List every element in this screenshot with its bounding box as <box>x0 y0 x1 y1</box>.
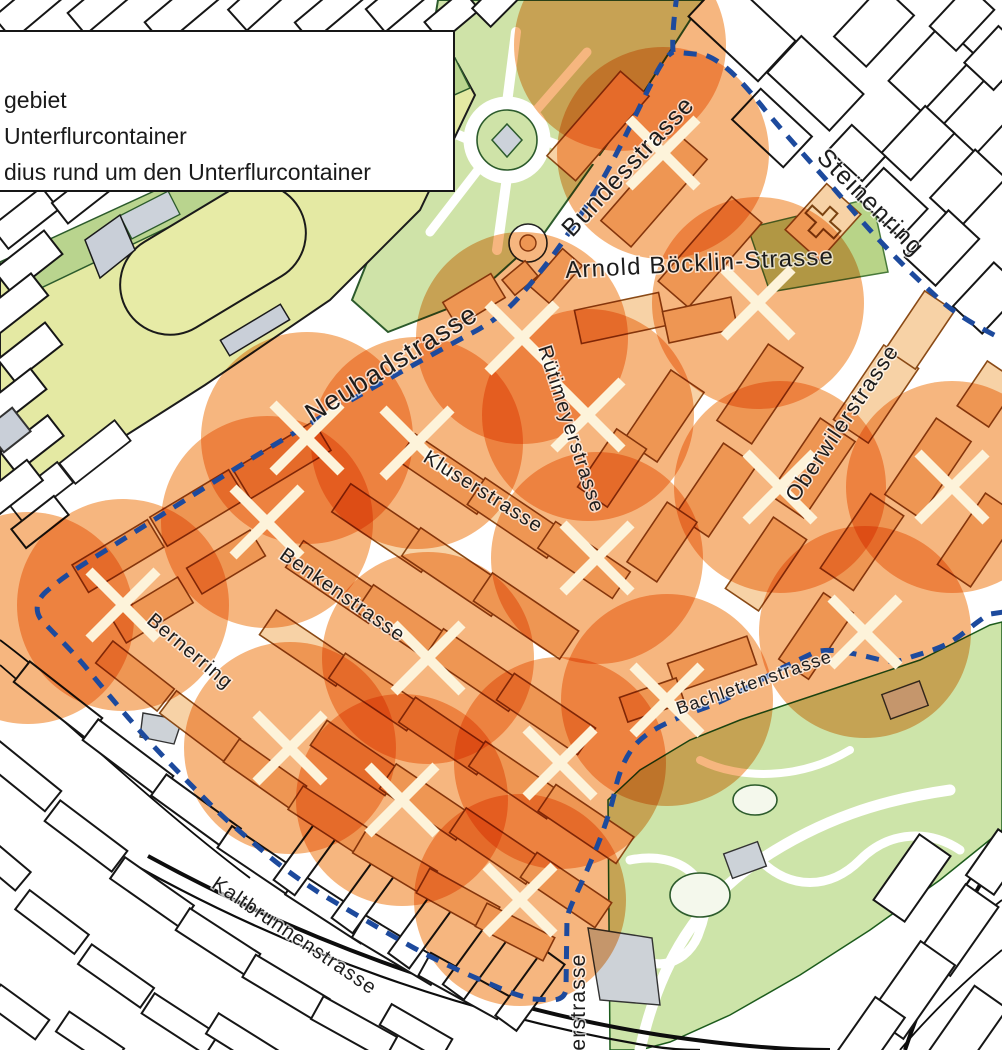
legend-item-radius: dius rund um den Unterflurcontainer <box>4 154 371 190</box>
street-label-erstrasse: erstrasse <box>567 953 590 1050</box>
legend-rows: gebiet Unterflurcontainer dius rund um d… <box>4 82 371 190</box>
legend-item-container-location: Unterflurcontainer <box>4 118 371 154</box>
legend-box: gebiet Unterflurcontainer dius rund um d… <box>0 30 455 192</box>
legend-item-pilot-area: gebiet <box>4 82 371 118</box>
zoo-pond-small <box>733 785 777 815</box>
map-screenshot: BundesstrasseSteinenringArnold Böcklin-S… <box>0 0 1002 1050</box>
zoo-pond <box>670 873 730 917</box>
